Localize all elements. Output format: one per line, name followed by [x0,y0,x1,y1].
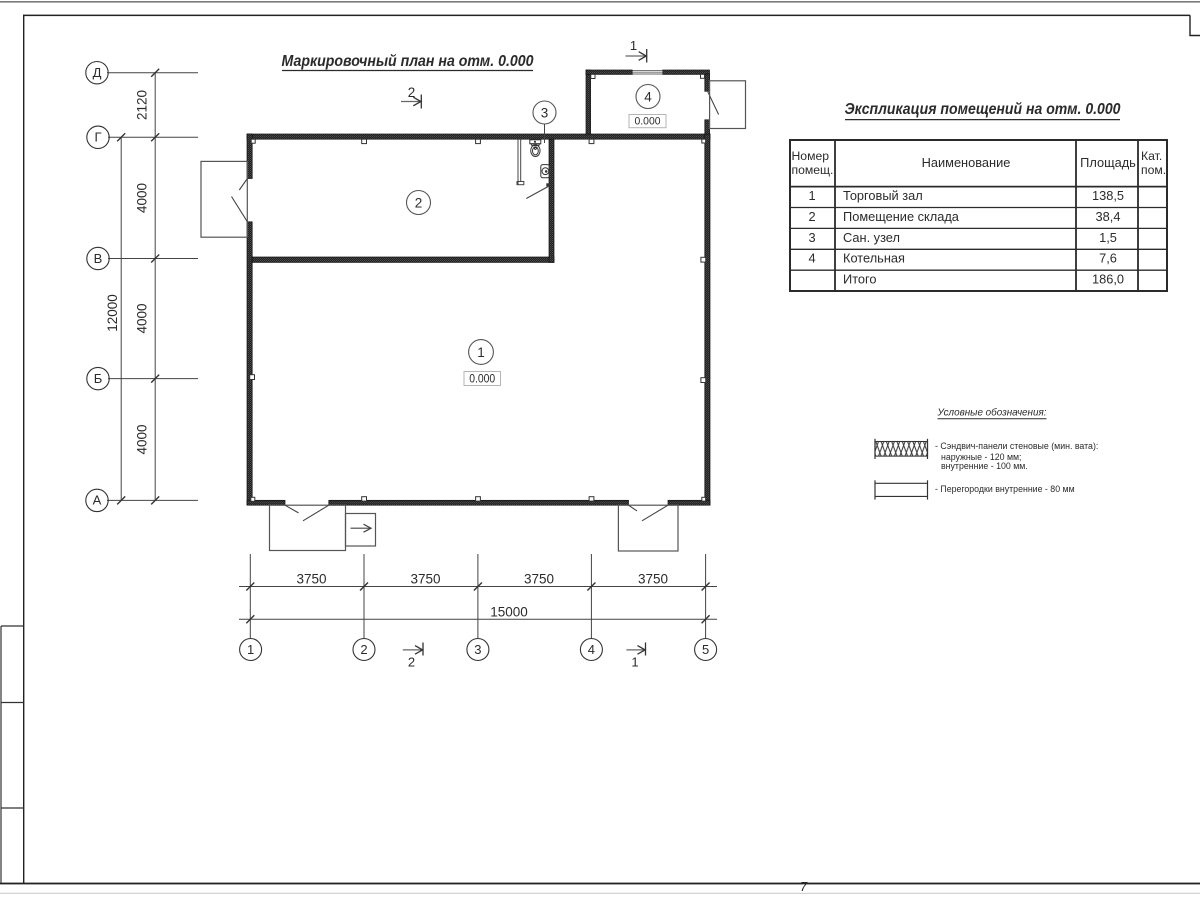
svg-text:4: 4 [808,251,815,266]
svg-text:3750: 3750 [524,572,554,587]
svg-text:Итого: Итого [843,272,877,287]
svg-text:2: 2 [808,209,815,224]
svg-text:Торговый зал: Торговый зал [843,188,923,203]
svg-text:Сан. узел: Сан. узел [843,230,900,245]
svg-text:В: В [94,251,103,266]
svg-text:1: 1 [630,38,637,53]
svg-text:Условные обозначения:: Условные обозначения: [937,407,1047,419]
svg-text:Номер: Номер [792,149,830,163]
svg-text:3750: 3750 [296,572,326,587]
svg-text:5: 5 [702,642,709,657]
svg-text:Маркировочный план на отм. 0.0: Маркировочный план на отм. 0.000 [282,53,534,70]
svg-text:- Сэндвич-панели стеновые (мин: - Сэндвич-панели стеновые (мин. вата): [935,441,1098,451]
svg-text:помещ.: помещ. [792,163,834,177]
svg-text:1: 1 [631,655,638,670]
svg-text:7,6: 7,6 [1099,251,1117,266]
svg-text:2: 2 [360,642,367,657]
svg-text:3: 3 [541,106,549,121]
svg-text:2: 2 [415,196,423,211]
svg-text:1,5: 1,5 [1099,230,1117,245]
svg-text:Площадь: Площадь [1080,155,1136,170]
svg-text:Наименование: Наименование [922,155,1011,170]
svg-text:12000: 12000 [105,294,120,332]
svg-text:4: 4 [588,642,595,657]
svg-text:4: 4 [644,90,652,105]
svg-text:3: 3 [808,230,815,245]
svg-text:38,4: 38,4 [1096,209,1121,224]
svg-text:2: 2 [408,655,415,670]
svg-text:- Перегородки внутренние - 80: - Перегородки внутренние - 80 мм [935,484,1075,494]
svg-text:4000: 4000 [135,183,150,213]
svg-text:А: А [93,493,102,508]
svg-text:0.000: 0.000 [469,373,495,385]
svg-text:Б: Б [94,371,103,386]
svg-text:Экспликация помещений на отм.: Экспликация помещений на отм. 0.000 [845,101,1121,118]
svg-text:3750: 3750 [638,572,668,587]
svg-text:1: 1 [808,188,815,203]
svg-text:Г: Г [94,130,101,145]
svg-text:15000: 15000 [490,604,528,619]
svg-text:Котельная: Котельная [843,251,905,266]
svg-text:138,5: 138,5 [1092,188,1124,203]
svg-text:4000: 4000 [135,424,150,454]
svg-text:1: 1 [477,345,485,360]
svg-text:Помещение склада: Помещение склада [843,209,960,224]
svg-text:4000: 4000 [135,303,150,333]
svg-text:Д: Д [93,65,102,80]
svg-text:пом.: пом. [1141,163,1166,177]
svg-text:2120: 2120 [135,90,150,120]
svg-text:7: 7 [800,879,808,894]
svg-text:Кат.: Кат. [1141,149,1162,163]
svg-text:3: 3 [474,642,481,657]
svg-text:внутренние - 100 мм.: внутренние - 100 мм. [941,461,1028,471]
svg-text:186,0: 186,0 [1092,272,1124,287]
svg-text:1: 1 [247,642,254,657]
svg-text:3750: 3750 [410,572,440,587]
svg-text:0.000: 0.000 [635,116,661,128]
